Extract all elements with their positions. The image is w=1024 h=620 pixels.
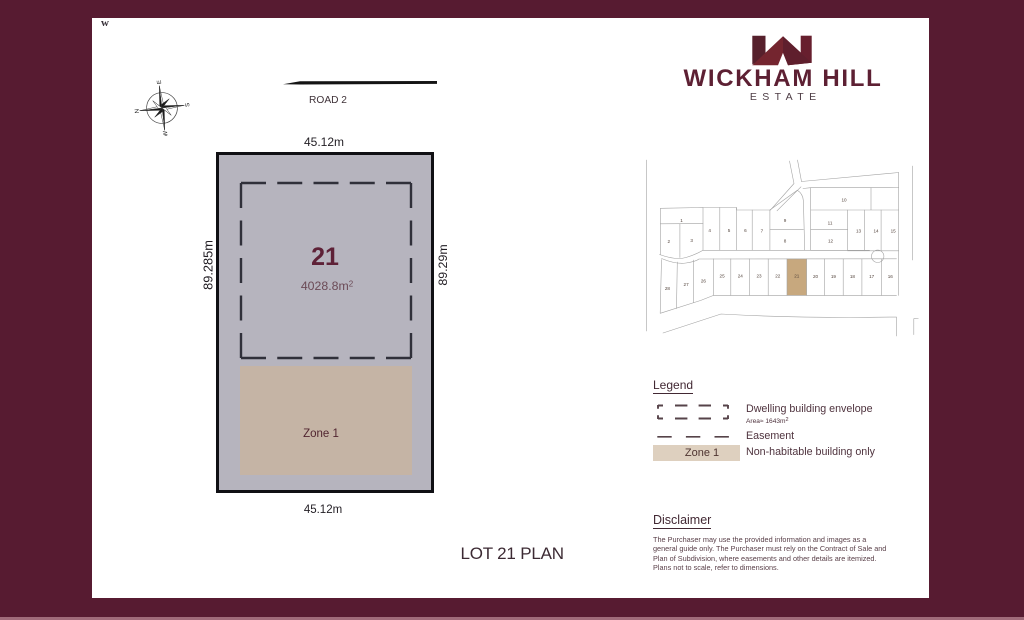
svg-text:4: 4 bbox=[708, 228, 711, 233]
svg-text:26: 26 bbox=[701, 279, 707, 284]
svg-text:25: 25 bbox=[720, 274, 726, 279]
svg-text:15: 15 bbox=[891, 228, 897, 233]
svg-text:W: W bbox=[163, 130, 170, 136]
svg-text:12: 12 bbox=[828, 239, 834, 244]
svg-text:5: 5 bbox=[728, 228, 731, 233]
svg-text:11: 11 bbox=[828, 221, 833, 226]
svg-text:22: 22 bbox=[775, 274, 781, 279]
svg-text:2: 2 bbox=[668, 239, 671, 244]
svg-text:S: S bbox=[185, 102, 190, 107]
svg-text:23: 23 bbox=[756, 274, 762, 279]
svg-text:6: 6 bbox=[744, 228, 747, 233]
svg-text:20: 20 bbox=[813, 274, 819, 279]
svg-text:17: 17 bbox=[869, 274, 875, 279]
svg-text:1: 1 bbox=[680, 218, 683, 223]
svg-text:7: 7 bbox=[761, 229, 764, 234]
svg-text:24: 24 bbox=[738, 274, 744, 279]
svg-text:8: 8 bbox=[784, 239, 787, 244]
svg-text:13: 13 bbox=[856, 229, 862, 234]
svg-text:3: 3 bbox=[690, 238, 693, 243]
svg-text:21: 21 bbox=[794, 274, 800, 279]
svg-text:18: 18 bbox=[850, 274, 856, 279]
svg-text:19: 19 bbox=[831, 274, 837, 279]
svg-text:10: 10 bbox=[841, 198, 847, 203]
svg-text:16: 16 bbox=[888, 274, 894, 279]
svg-text:14: 14 bbox=[873, 229, 879, 234]
svg-text:27: 27 bbox=[684, 282, 690, 287]
svg-text:9: 9 bbox=[784, 218, 787, 223]
svg-text:E: E bbox=[157, 80, 163, 84]
svg-text:N: N bbox=[134, 108, 140, 113]
svg-text:28: 28 bbox=[665, 286, 671, 291]
